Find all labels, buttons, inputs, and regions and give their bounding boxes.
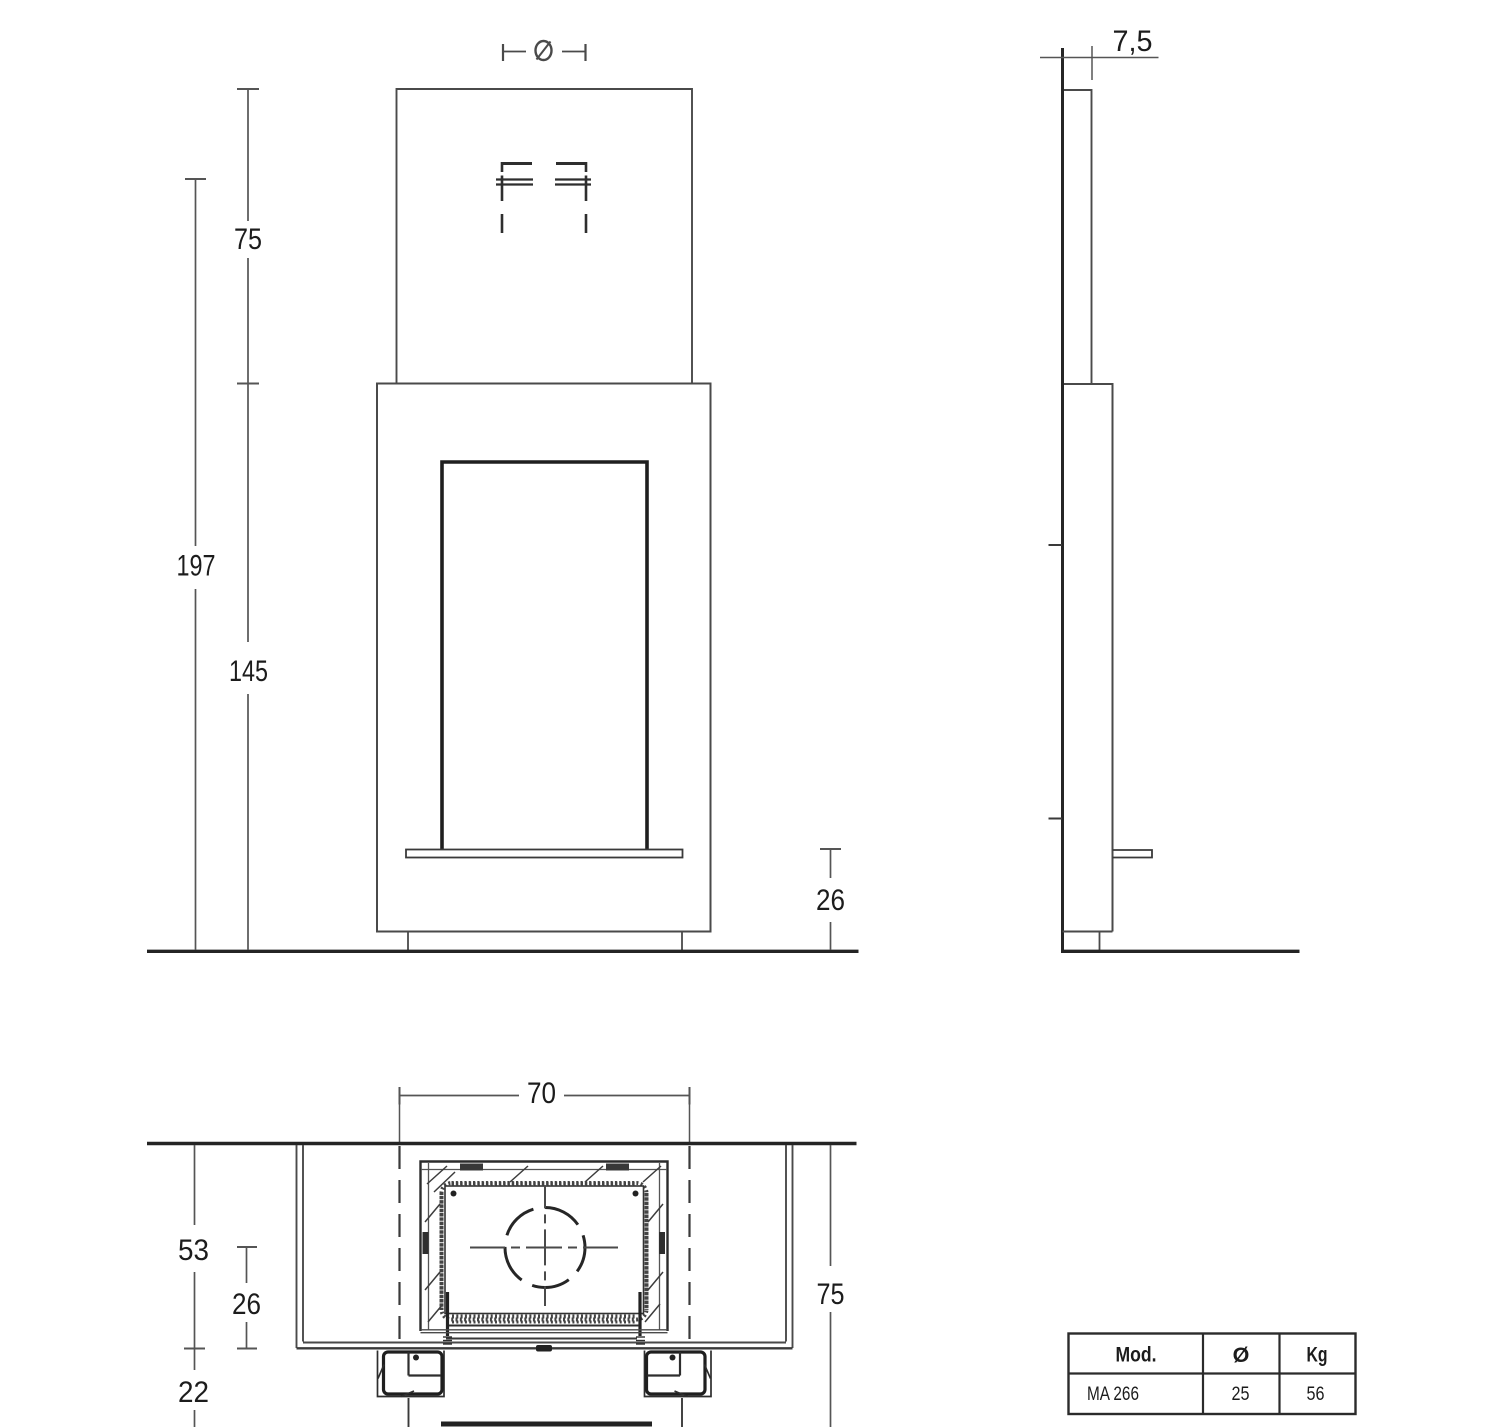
svg-text:Ø: Ø	[1233, 1343, 1250, 1367]
svg-text:75: 75	[817, 1278, 845, 1311]
svg-text:53: 53	[178, 1234, 209, 1267]
svg-text:MA 266: MA 266	[1087, 1383, 1139, 1405]
svg-text:Mod.: Mod.	[1116, 1343, 1157, 1367]
svg-text:56: 56	[1307, 1383, 1325, 1405]
svg-text:70: 70	[527, 1077, 556, 1110]
svg-text:75: 75	[234, 223, 262, 256]
svg-text:25: 25	[1232, 1383, 1250, 1405]
svg-text:22: 22	[178, 1376, 209, 1409]
svg-text:26: 26	[816, 884, 845, 917]
svg-text:145: 145	[229, 655, 268, 688]
svg-text:197: 197	[177, 550, 216, 583]
svg-text:Kg: Kg	[1307, 1343, 1328, 1367]
svg-text:26: 26	[232, 1288, 261, 1321]
svg-text:7,5: 7,5	[1113, 25, 1153, 58]
